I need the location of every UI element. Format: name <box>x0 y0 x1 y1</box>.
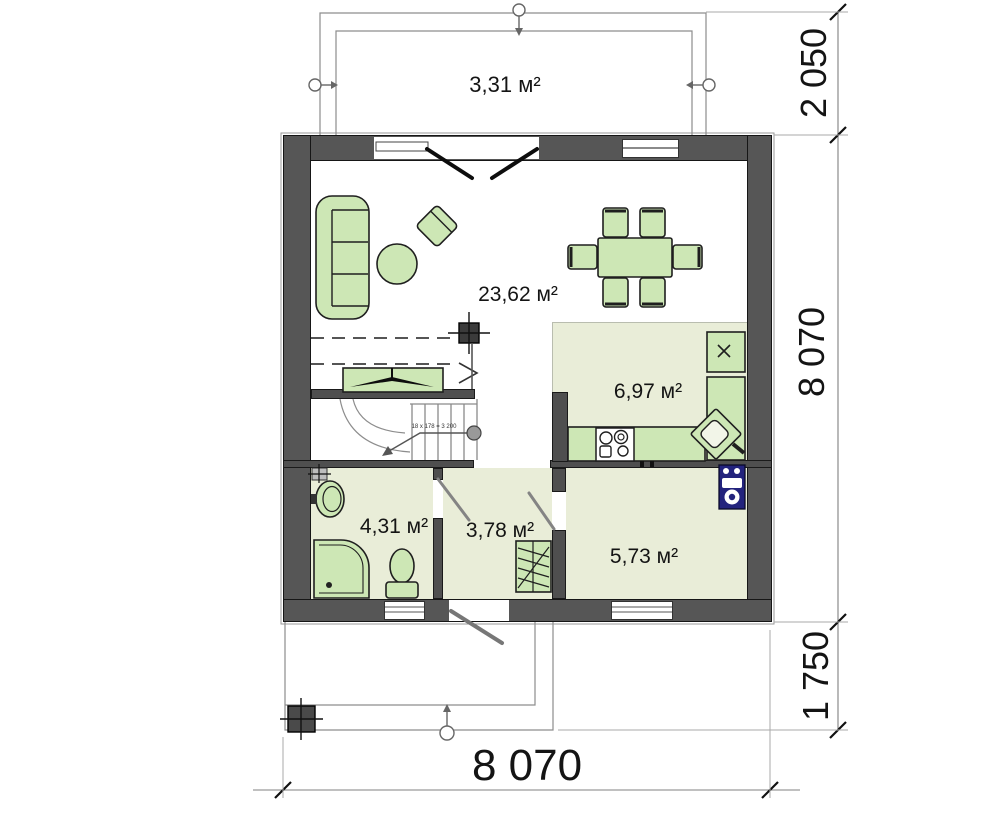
shower-icon <box>314 540 369 598</box>
dining-chair <box>673 245 702 269</box>
counter-bottom <box>568 427 705 461</box>
bottom-window-mullions <box>385 607 672 612</box>
dining-chair <box>640 278 665 307</box>
washing-machine-icon <box>719 465 745 509</box>
armchair <box>416 205 458 247</box>
dining-set <box>568 208 702 307</box>
plan-linework <box>0 0 1000 822</box>
porch-marker <box>440 704 454 740</box>
porch-outer-outline <box>285 622 553 730</box>
dining-chair <box>603 278 628 307</box>
stairs-note: 18 x 178 = 3 200 <box>412 424 457 430</box>
area-label-bathroom: 4,31 м² <box>360 515 428 539</box>
dimension-ticks <box>275 4 846 798</box>
door-leaf-left <box>427 149 472 178</box>
dimension-top-right: 2 050 <box>793 28 835 118</box>
stair-start-marker <box>467 426 481 440</box>
area-label-hall: 3,78 м² <box>466 519 534 543</box>
sofa <box>316 196 369 319</box>
coffee-table <box>377 244 417 284</box>
wardrobe-icon <box>516 541 551 592</box>
tv-stand <box>343 368 443 392</box>
area-label-bedroom: 5,73 м² <box>610 545 678 569</box>
terrace-french-door <box>376 142 537 178</box>
stair-rail-arc2 <box>353 399 405 433</box>
dimension-right: 8 070 <box>791 307 833 397</box>
dimension-bottom: 8 070 <box>472 741 582 791</box>
dining-table <box>598 238 672 277</box>
bathroom-door-leaf <box>438 479 469 520</box>
area-label-terrace: 3,31 м² <box>469 72 540 98</box>
toilet-icon <box>386 549 418 598</box>
faucet-icon <box>308 464 331 483</box>
dining-chair <box>603 208 628 237</box>
dimension-bottom-right: 1 750 <box>795 631 837 721</box>
stove-icon <box>596 428 634 461</box>
dining-chair <box>568 245 597 269</box>
dining-chair <box>640 208 665 237</box>
washbasin-icon <box>311 481 344 517</box>
passage-arrow <box>459 363 477 383</box>
extension-lines <box>283 12 848 798</box>
entrance-door-leaf <box>451 611 502 643</box>
terrace-marker-right <box>686 79 715 91</box>
stairs <box>340 399 481 460</box>
porch-column <box>280 698 323 740</box>
area-label-kitchen: 6,97 м² <box>614 380 682 404</box>
door-leaf-right <box>492 149 537 178</box>
porch-inner-outline <box>285 622 535 705</box>
area-label-living: 23,62 м² <box>478 283 558 307</box>
floor-plan: 3,31 м² 23,62 м² 6,97 м² 4,31 м² 3,78 м²… <box>0 0 1000 822</box>
terrace-marker-left <box>309 79 338 91</box>
